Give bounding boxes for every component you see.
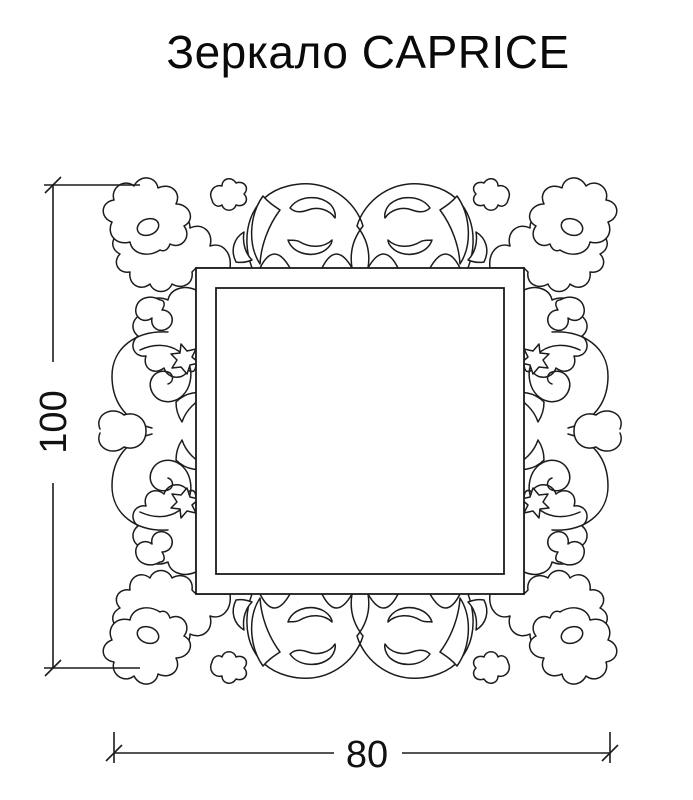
drawing-title: Зеркало CAPRICE <box>166 26 569 78</box>
mirror-inner-border <box>216 288 504 574</box>
mirror-drawing-canvas: Зеркало CAPRICE <box>0 0 693 800</box>
width-dimension-label: 80 <box>346 734 388 776</box>
mirror-glass <box>196 268 524 594</box>
width-dimension: 80 <box>106 732 618 776</box>
technical-drawing-page: Зеркало CAPRICE <box>0 0 693 800</box>
height-dimension-label: 100 <box>33 390 75 453</box>
